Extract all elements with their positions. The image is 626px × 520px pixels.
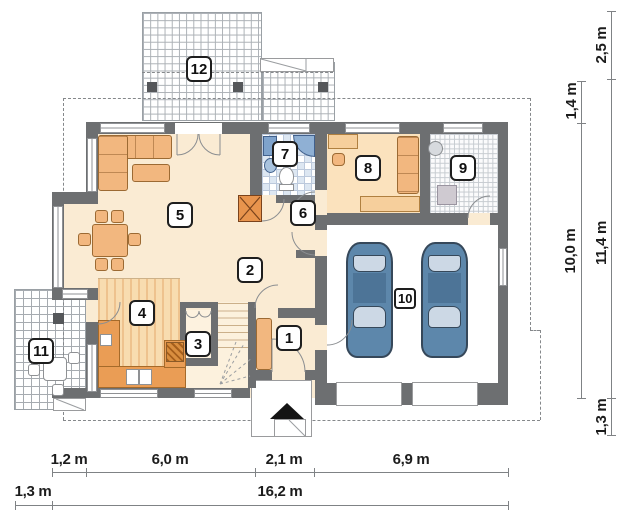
room-label-text: 7: [281, 146, 289, 163]
sofa-vertical: [98, 135, 128, 191]
dim-tick: [314, 468, 315, 477]
dim-label-1-3m-right: 1,3 m: [593, 391, 609, 443]
wall-garage-top-b: [490, 213, 498, 225]
car-roof: [428, 273, 461, 303]
room-label-text: 8: [364, 160, 372, 177]
dining-chair-3: [95, 258, 108, 271]
dim-tick: [86, 468, 87, 477]
dining-chair-4: [111, 258, 124, 271]
room-label-text: 2: [246, 262, 254, 279]
dim-tick: [15, 501, 16, 510]
car-windshield: [428, 306, 461, 328]
kitchen-sink: [126, 369, 152, 385]
dim-tick: [52, 501, 53, 510]
dining-chair-1: [95, 210, 108, 223]
dining-chair-5: [78, 233, 91, 246]
stairs-winder-floor: [186, 366, 218, 388]
room-label-7: 7: [272, 141, 298, 167]
dim-label-6-9m: 6,9 m: [381, 451, 441, 468]
dim-label-11-4m: 11,4 m: [593, 217, 609, 269]
garage-door-2: [412, 382, 478, 406]
car-rear-window: [353, 255, 386, 272]
wall-pantry-top: [180, 302, 218, 308]
window-room9-top: [443, 123, 483, 133]
car-right: [421, 242, 468, 358]
window-left-upper: [87, 138, 97, 192]
dim-line-bottom-lower: [15, 505, 508, 506]
wall-hall6-stub: [296, 250, 315, 258]
room-label-2: 2: [237, 257, 263, 283]
wall-living-hall: [250, 134, 262, 195]
boiler: [437, 185, 457, 205]
terrace-chair-3: [28, 364, 40, 376]
stairs-treads: [218, 303, 248, 351]
dim-line-bottom-upper: [52, 472, 508, 473]
terrace-door-opening: [175, 123, 222, 134]
wall-mid-b: [315, 215, 327, 230]
room-label-8: 8: [355, 155, 381, 181]
room-label-text: 9: [459, 160, 467, 177]
wall-mid-a: [315, 134, 327, 190]
room-label-5: 5: [167, 202, 193, 228]
room-label-text: 6: [299, 205, 307, 222]
terrace-12-post-2: [233, 82, 243, 92]
car-roof: [353, 273, 386, 303]
terrace-12-eave-line: [142, 72, 333, 73]
window-kitchen-bottom: [100, 389, 158, 398]
dining-chair-2: [111, 210, 124, 223]
dim-label-16-2m: 16,2 m: [250, 483, 310, 500]
dim-label-1-2m: 1,2 m: [39, 451, 99, 468]
dim-tick: [508, 501, 509, 510]
dim-tick: [255, 468, 256, 477]
dim-label-2-5m: 2,5 m: [593, 19, 609, 71]
terrace-chair-1: [68, 352, 80, 364]
dim-label-1-3m-bottom: 1,3 m: [3, 483, 63, 500]
dim-tick: [508, 468, 509, 477]
dim-tick: [607, 79, 616, 80]
roof-outline-right-lower: [540, 330, 541, 420]
wall-stairs-right: [248, 302, 256, 388]
room-label-6: 6: [290, 200, 316, 226]
garage-door-1: [336, 382, 402, 406]
dim-tick: [577, 398, 586, 399]
dim-line-right-inner: [581, 81, 582, 398]
utility-sink: [428, 141, 443, 156]
fireplace: [238, 195, 262, 222]
floor-plan: 1 2 3 4 5 6 7 8 9 10 11 12 1,2 m 6,0 m 2…: [0, 0, 626, 520]
room-label-9: 9: [450, 155, 476, 181]
terrace-12-step: [260, 58, 334, 72]
toilet-tank: [279, 184, 294, 191]
wall-garage-top-a: [327, 213, 468, 225]
roof-outline-right-upper: [530, 98, 531, 330]
window-room8-top: [345, 123, 400, 133]
room-label-text: 5: [176, 207, 184, 224]
coffee-table: [132, 164, 170, 182]
terrace-12-post-3: [318, 82, 328, 92]
room-label-text: 10: [398, 291, 412, 306]
room8-desk: [328, 134, 358, 149]
room-label-text: 4: [138, 305, 146, 322]
room-label-text: 12: [191, 61, 208, 78]
car-left: [346, 242, 393, 358]
room-label-text: 11: [33, 343, 49, 360]
window-bath-top: [268, 123, 310, 133]
wall-mid-d: [315, 350, 327, 388]
room-label-12: 12: [186, 56, 212, 82]
room-label-4: 4: [129, 300, 155, 326]
terrace-chair-2: [52, 384, 64, 396]
roof-outline-top: [63, 98, 530, 99]
room8-chair: [332, 153, 345, 166]
window-living-top: [100, 123, 165, 133]
stove: [166, 342, 184, 362]
dim-label-2-1m: 2,1 m: [254, 451, 314, 468]
window-garage-right: [499, 248, 507, 286]
dining-table: [92, 224, 128, 257]
room-label-10: 10: [394, 288, 416, 309]
dim-line-right-outer: [611, 11, 612, 435]
room8-sofa: [397, 136, 419, 194]
dim-tick: [52, 468, 53, 477]
room-label-11: 11: [28, 338, 54, 364]
kitchen-appliance: [100, 334, 112, 346]
dining-chair-6: [128, 233, 141, 246]
room8-wardrobe: [360, 196, 420, 212]
car-rear-window: [428, 255, 461, 272]
room-label-text: 1: [285, 330, 293, 347]
dim-tick: [607, 11, 616, 12]
wall-mid-c: [315, 256, 327, 325]
roof-outline-step: [530, 330, 540, 331]
window-bay-bottom: [62, 289, 88, 299]
dim-label-1-4m: 1,4 m: [563, 75, 579, 127]
terrace-11-post: [53, 313, 64, 324]
terrace-12-post-1: [147, 82, 157, 92]
car-windshield: [353, 306, 386, 328]
window-bay-left: [53, 206, 63, 288]
window-kitchen-left: [87, 344, 97, 392]
entry-wardrobe: [256, 318, 272, 370]
dim-label-10-0m: 10,0 m: [562, 225, 578, 277]
room-label-3: 3: [185, 331, 211, 357]
wall-pantry-right: [211, 302, 218, 358]
room-label-1: 1: [276, 325, 302, 351]
window-stairs-bottom: [194, 389, 232, 398]
entry-step: [274, 419, 306, 437]
terrace-11-step: [53, 398, 86, 411]
dim-label-6-0m: 6,0 m: [140, 451, 200, 468]
room-label-text: 3: [194, 336, 202, 353]
